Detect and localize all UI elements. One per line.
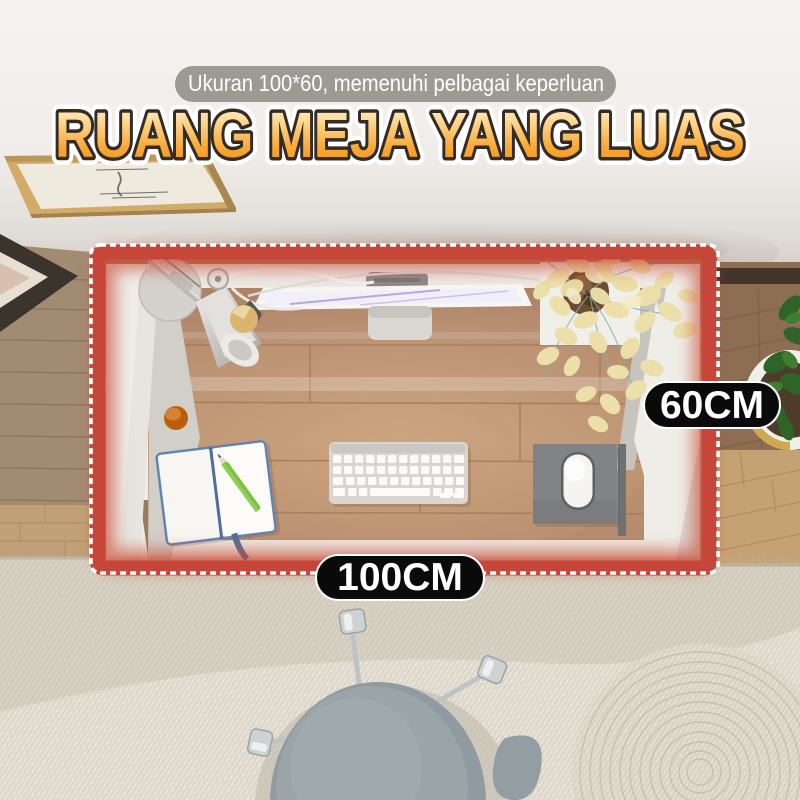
svg-text:RUANG MEJA YANG LUAS: RUANG MEJA YANG LUAS [55, 99, 745, 171]
svg-text:60CM: 60CM [660, 384, 764, 427]
svg-text:100CM: 100CM [337, 556, 463, 599]
svg-text:Ukuran 100*60, memenuhi pelbag: Ukuran 100*60, memenuhi pelbagai keperlu… [188, 70, 604, 96]
